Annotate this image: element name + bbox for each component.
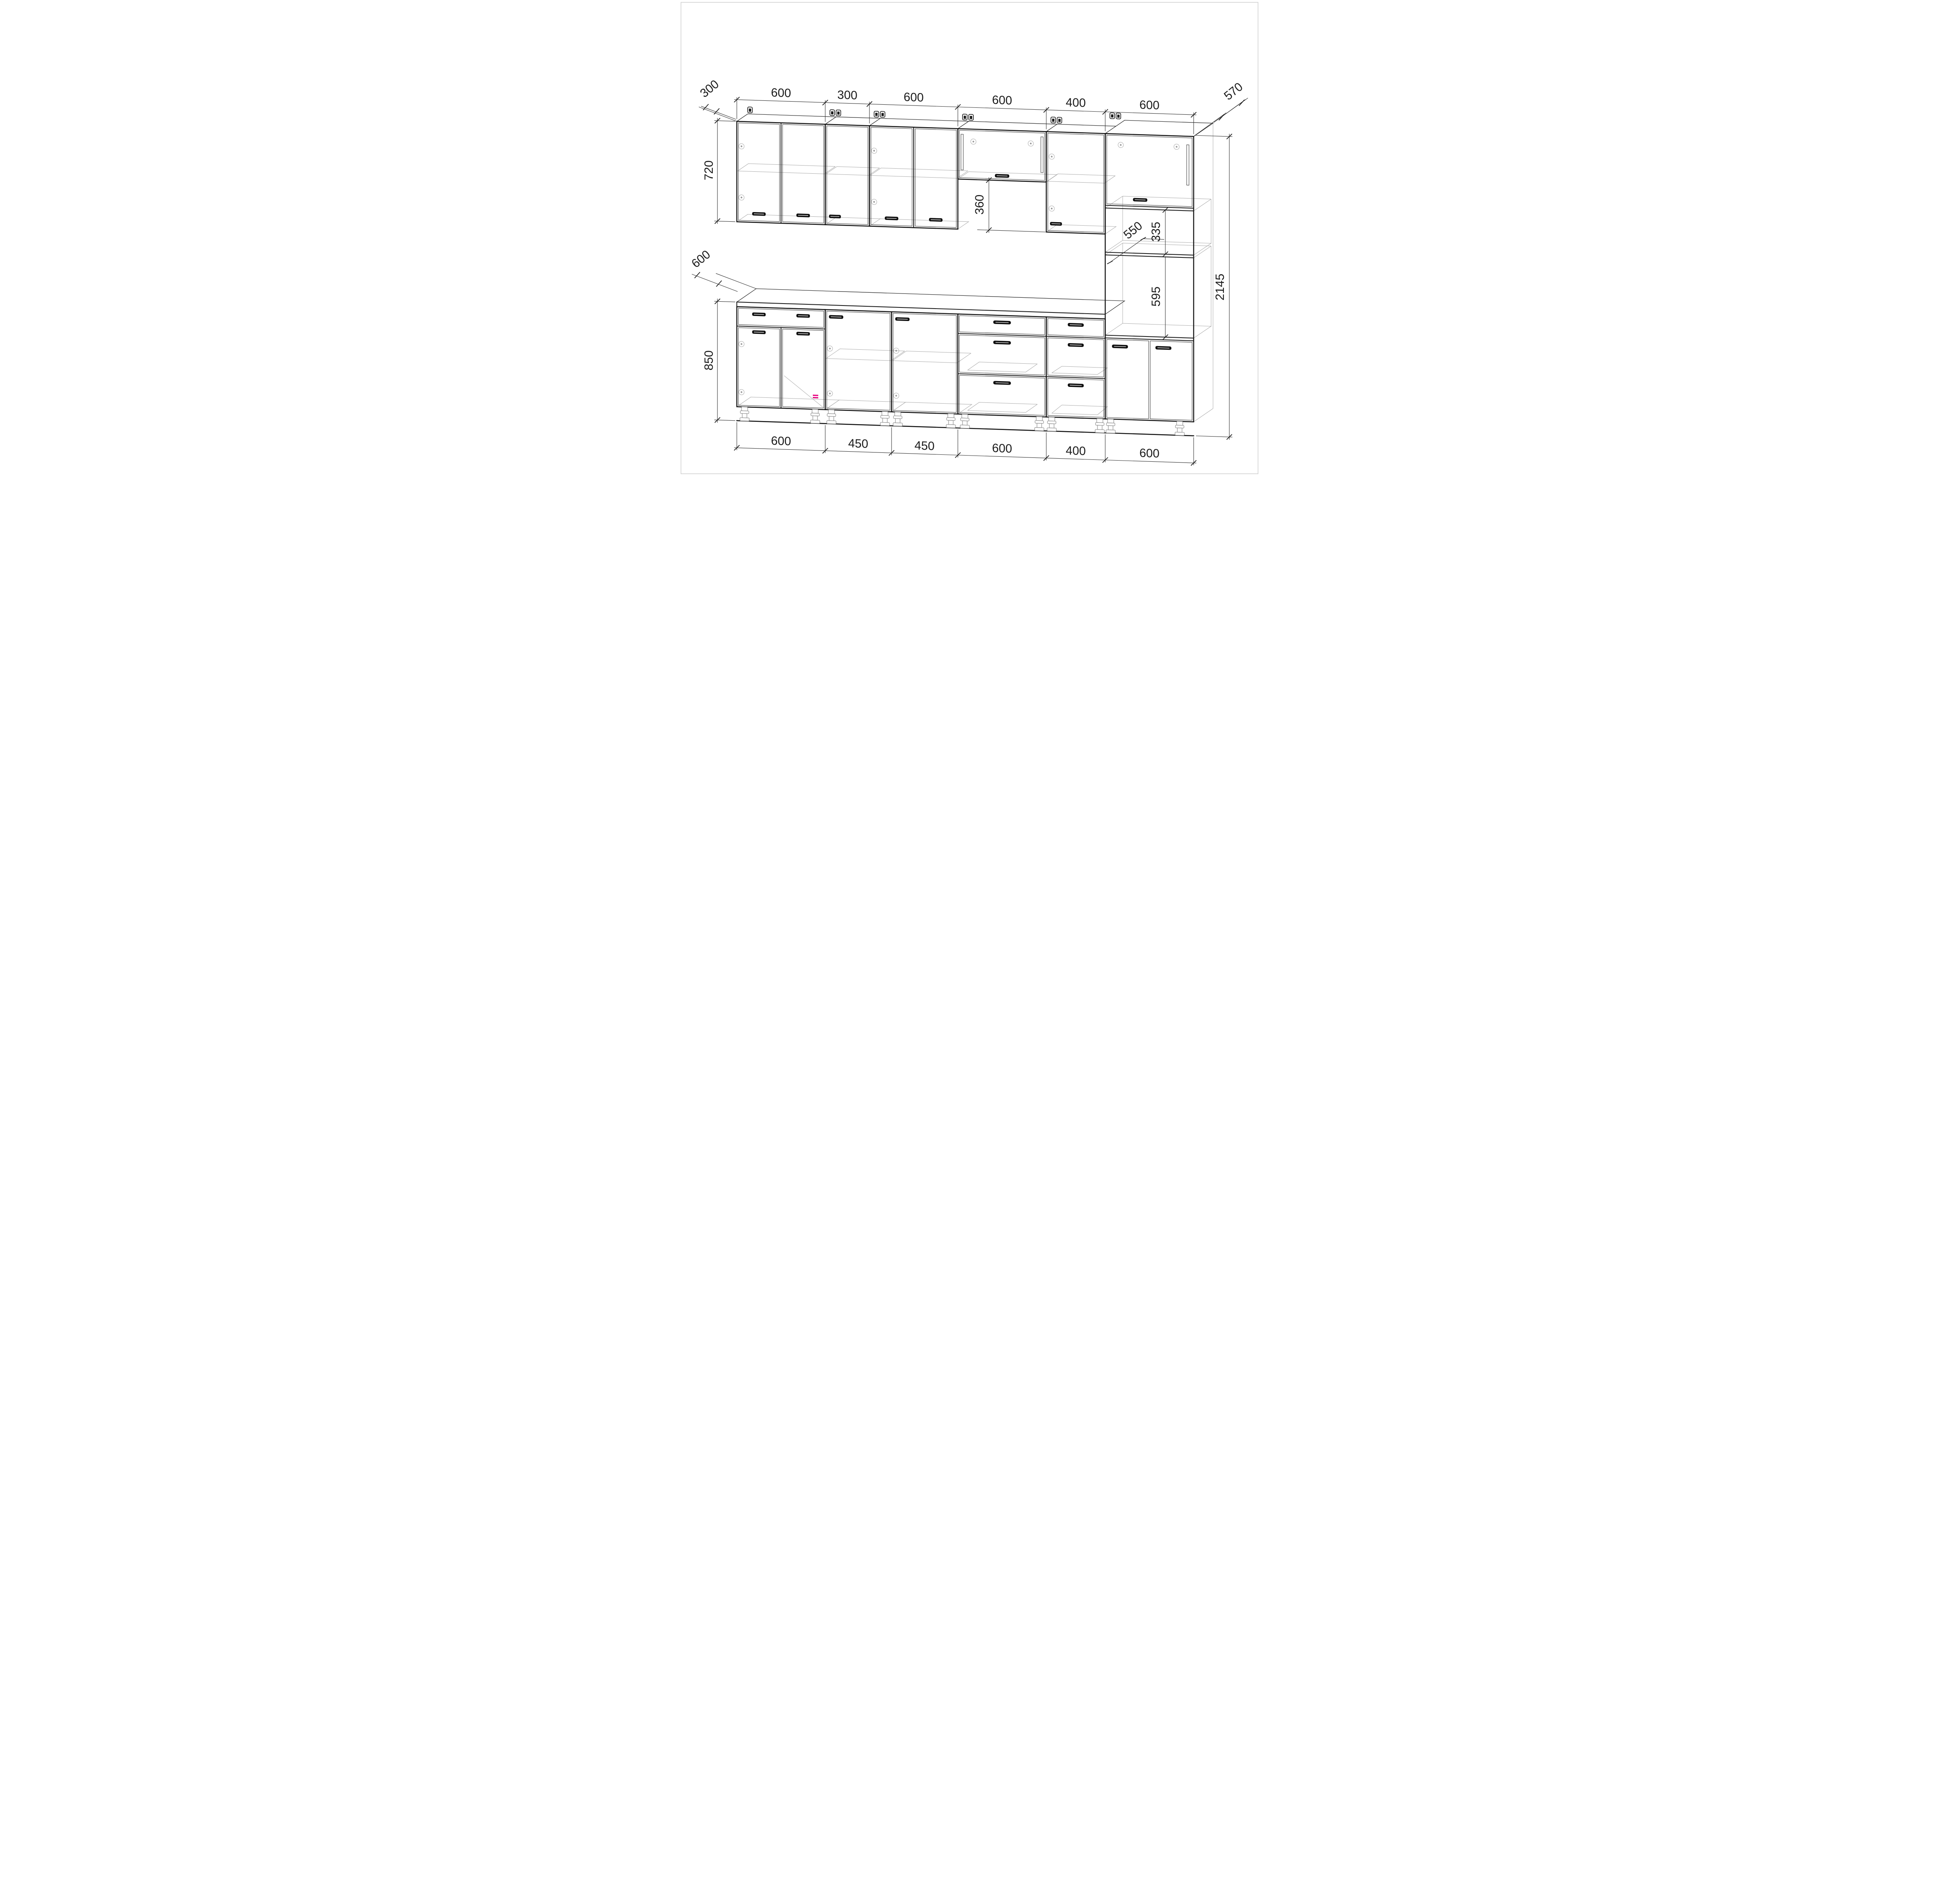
dim-bottom-4: 600	[992, 441, 1012, 456]
dim-upper-niche: 335	[1149, 221, 1163, 242]
tall-base-door-right	[1150, 341, 1192, 420]
tall-oven-unit	[1105, 133, 1194, 422]
lift-hinge-bar	[1187, 145, 1189, 185]
dim-bottom-2: 450	[848, 437, 868, 451]
drawing-page: 600 300 600 600 400 600 600 450 450 600 …	[679, 0, 1260, 476]
countertop-top-face	[737, 288, 1125, 315]
dim-top-3: 600	[904, 90, 924, 104]
dim-wall-height: 720	[702, 160, 715, 181]
base-cabinet-600-left	[737, 307, 825, 410]
base-cabinet-400-drawers	[1046, 317, 1105, 419]
dim-base-depth: 600	[689, 247, 713, 270]
page-border	[681, 2, 1258, 474]
hinges	[739, 129, 1179, 409]
wall-cabinet-600-left	[737, 121, 825, 225]
dim-bottom-6: 600	[1139, 446, 1160, 460]
dim-tall-depth: 570	[1221, 80, 1245, 103]
interior-wireframe	[737, 107, 1213, 423]
wall-cabinet-600-second	[869, 126, 958, 229]
dim-bottom-3: 450	[914, 438, 935, 453]
dim-top-5: 400	[1066, 95, 1086, 110]
handles	[752, 166, 1171, 390]
dim-inner-depth: 550	[1121, 219, 1145, 242]
dim-hood-offset: 360	[973, 194, 986, 215]
dim-bottom-1: 600	[771, 434, 791, 448]
dim-top-2: 300	[837, 88, 857, 102]
base-cabinet-450-first	[825, 310, 892, 412]
dim-total-height: 2145	[1213, 273, 1227, 300]
lift-hinge-bar-left	[961, 134, 963, 170]
dim-bottom-5: 400	[1066, 444, 1086, 458]
projected-scene: 600 300 600 600 400 600 600 450 450 600 …	[689, 62, 1248, 468]
dim-top-1: 600	[771, 86, 791, 100]
base-cabinet-600-drawers	[958, 314, 1046, 417]
dim-base-height: 850	[702, 350, 715, 371]
dim-oven-niche: 595	[1149, 286, 1163, 307]
base-cabinet-450-second	[892, 312, 958, 414]
lift-hinge-bar-right	[1041, 137, 1043, 173]
dim-top-6: 600	[1139, 98, 1160, 112]
tall-base-door-left	[1107, 340, 1149, 419]
dimension-lines	[692, 79, 1248, 468]
highlight-mark	[813, 395, 818, 397]
dim-wall-depth: 300	[697, 77, 721, 100]
dim-top-4: 600	[992, 93, 1012, 107]
kitchen-cabinet-dimension-drawing: 600 300 600 600 400 600 600 450 450 600 …	[679, 0, 1260, 476]
